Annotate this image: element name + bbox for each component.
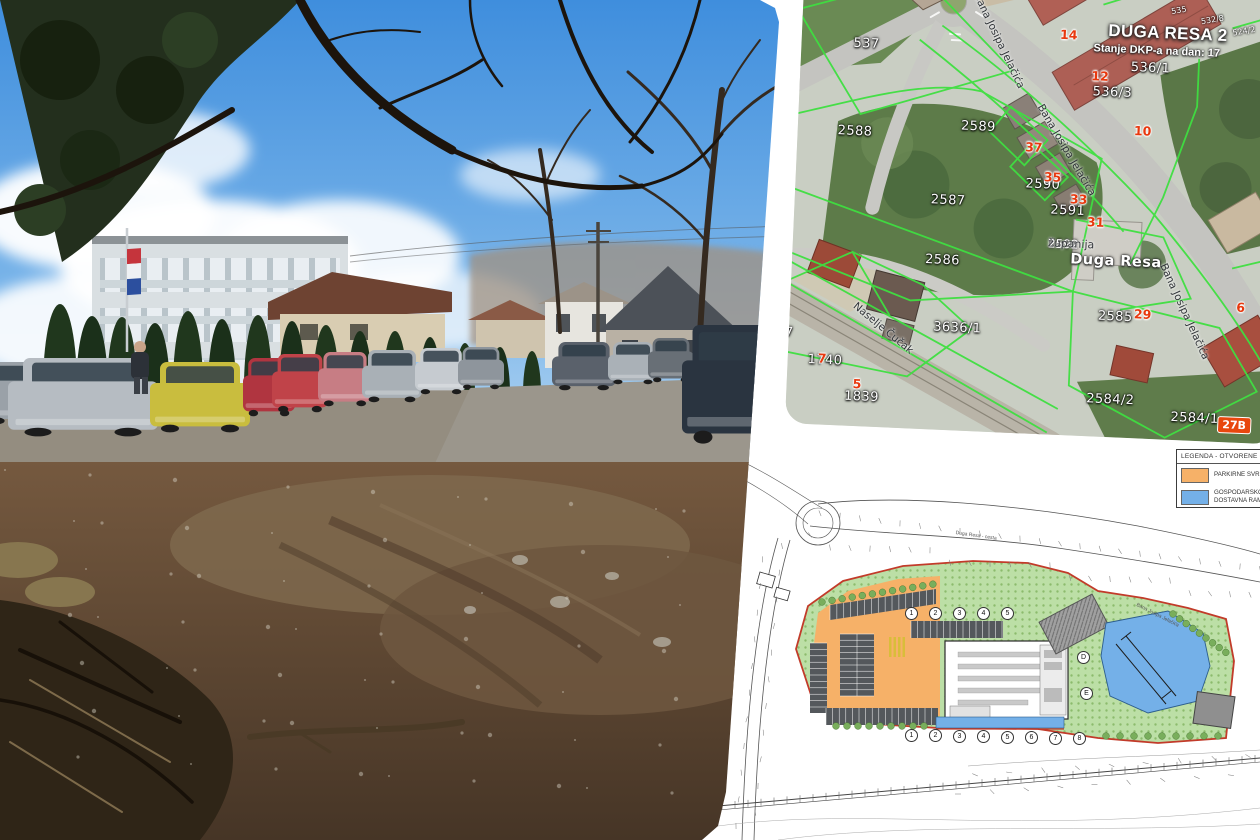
grid-bubble-1: 1 (905, 729, 918, 742)
parcel-label-535: 535 (1171, 5, 1188, 16)
grid-bubble-8: 8 (1073, 732, 1086, 745)
grid-bubble-7: 7 (1049, 732, 1062, 745)
grid-bubble-3: 3 (953, 730, 966, 743)
house-number-6: 6 (1236, 300, 1245, 315)
parcel-label-25841: 2584/1 (1170, 410, 1219, 427)
parcel-label-5361: 536/1 (1130, 60, 1170, 77)
cadastral-map-panel: DUGA RESA 2 Stanje DKP-a na dan: 17 Karl… (785, 0, 1260, 444)
parcel-label-2586: 2586 (925, 252, 960, 268)
site-plan-panel: LEGENDA - OTVORENE GRA PARKIRNE SVRH GOS… (718, 406, 1260, 840)
parcel-label-36361: 3636/1 (933, 319, 982, 336)
car-2 (150, 362, 250, 432)
parking-swatch (1181, 468, 1209, 483)
grid-bubble-E: E (1080, 687, 1093, 700)
grid-bubble-2: 2 (929, 729, 942, 742)
site-photo-panel (0, 0, 790, 840)
car-6 (362, 350, 422, 402)
parcel-label-5328: 532/8 (1200, 14, 1224, 27)
house-number-10: 10 (1134, 123, 1152, 139)
photo-graphic (0, 0, 790, 840)
plan-road-label-1: Bana Josipa Jelačića (1135, 602, 1180, 629)
grid-bubble-5: 5 (1001, 607, 1014, 620)
grid-bubble-D: D (1077, 651, 1090, 664)
house-number-29: 29 (1134, 306, 1152, 322)
parcel-label-1839: 1839 (844, 389, 879, 405)
street-label-BanaJosipaJelačića: Bana Josipa Jelačića (971, 0, 1027, 91)
house-number-5: 5 (852, 376, 861, 391)
parcel-label-5363: 536/3 (1092, 84, 1132, 101)
grid-bubble-4: 4 (977, 607, 990, 620)
parcel-label-2589: 2589 (961, 118, 996, 134)
plan-road-label-0: Duga Resa - cesta (955, 530, 997, 542)
house-number-badge-27B: 27B (1217, 416, 1251, 434)
grid-bubble-5: 5 (1001, 731, 1014, 744)
grid-bubble-3: 3 (953, 607, 966, 620)
legend-item-parking: PARKIRNE SVRH (1177, 464, 1260, 485)
parcel-label-537: 537 (853, 36, 880, 52)
legend-item-delivery: GOSPODARSKO DOSTAVNA RAM (1177, 485, 1260, 507)
parcel-label-25842: 2584/2 (1086, 391, 1135, 408)
parcel-label-5242: 524/2 (1232, 25, 1256, 38)
house-number-31: 31 (1087, 214, 1105, 230)
grid-bubble-4: 4 (977, 730, 990, 743)
car-8 (458, 347, 504, 389)
parcel-label-2587: 2587 (930, 192, 965, 208)
grid-bubble-1: 1 (905, 607, 918, 620)
ground (0, 376, 790, 840)
parcel-label-2588: 2588 (837, 123, 872, 139)
street-label-BanaJosipaJelačića: Bana Josipa Jelačića (1157, 262, 1211, 362)
legend-title: LEGENDA - OTVORENE GRA (1177, 450, 1260, 464)
house-number-14: 14 (1060, 27, 1078, 43)
grid-bubble-6: 6 (1025, 731, 1038, 744)
city-label: Duga Resa (1070, 251, 1162, 271)
plan-overlay: LEGENDA - OTVORENE GRA PARKIRNE SVRH GOS… (718, 406, 1260, 840)
house-number-37: 37 (1025, 139, 1043, 155)
house-number-35: 35 (1044, 169, 1062, 185)
parcel-label-2585: 2585 (1098, 309, 1133, 325)
car-9 (552, 342, 616, 390)
house-number-7: 7 (817, 350, 826, 365)
plan-legend: LEGENDA - OTVORENE GRA PARKIRNE SVRH GOS… (1176, 449, 1260, 508)
street-label-NaseljeČučak: Naselje Čučak (851, 300, 916, 356)
parcel-label-1847: 1847 (785, 324, 794, 340)
delivery-swatch (1181, 490, 1209, 505)
house-number-12: 12 (1091, 68, 1109, 84)
grid-bubble-2: 2 (929, 607, 942, 620)
map-label-layer: DUGA RESA 2 Stanje DKP-a na dan: 17 Karl… (785, 0, 1260, 444)
